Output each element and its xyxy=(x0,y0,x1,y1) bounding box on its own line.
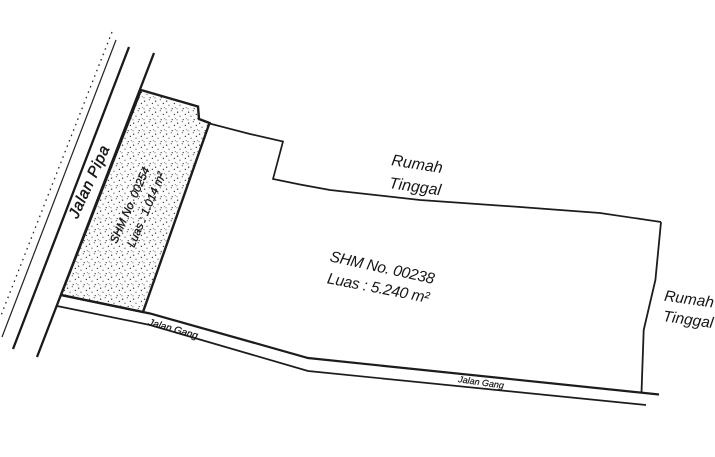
svg-text:Tinggal: Tinggal xyxy=(662,308,715,332)
svg-text:Tinggal: Tinggal xyxy=(388,175,443,199)
svg-text:Rumah: Rumah xyxy=(390,152,444,177)
svg-text:Rumah: Rumah xyxy=(663,288,715,312)
